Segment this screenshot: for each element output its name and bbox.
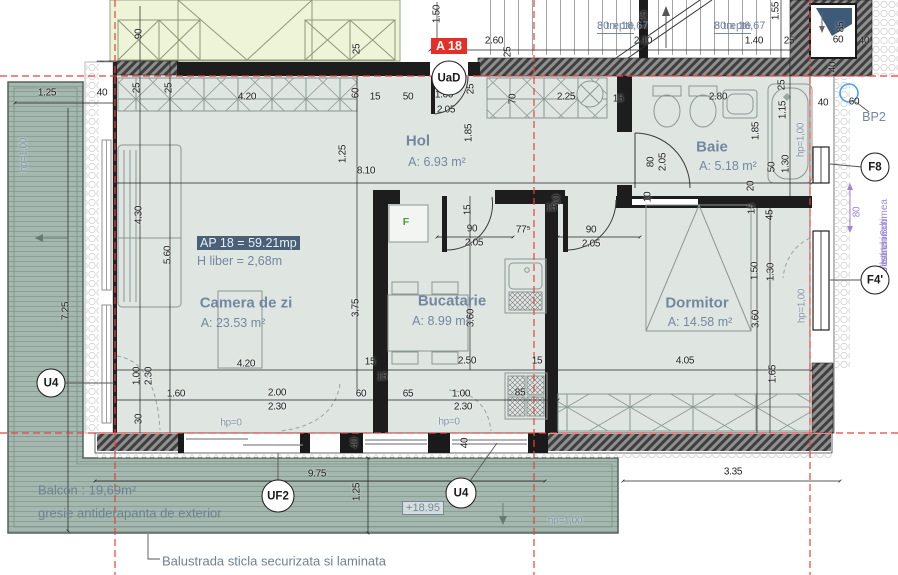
dimension-label: 8.10 [357, 166, 375, 177]
apartment-badge: A 18 [431, 38, 467, 54]
marker-uad: UaD [432, 61, 467, 96]
dimension-label: 15 [370, 92, 381, 103]
dimension-label: 2.50 [458, 356, 476, 367]
stairs-dimensions: 30 x 16,67 [597, 20, 648, 33]
marker-u4: U4 [37, 369, 66, 398]
dimension-label: 20 [746, 181, 757, 192]
dimension-label: 2.30 [454, 402, 472, 413]
room-area: A: 8.99 m² [412, 314, 470, 328]
dimension-label: 80 [852, 207, 863, 218]
dimension-label: 2.30 [268, 402, 286, 413]
stairs-dimensions: 30 x 16,67 [714, 20, 765, 33]
dimension-label: hp=1,00 [796, 123, 807, 157]
dimension-label: 60 [351, 88, 362, 99]
dimension-label: 90 [586, 225, 597, 236]
balcony-area-label: Balcon : 19,69m² [38, 483, 136, 498]
dimension-label: hp=1,00 [19, 138, 30, 172]
dimension-label: hp=1,00 [797, 289, 808, 323]
dimension-label: 40 [859, 36, 870, 47]
dimension-label: 10 [643, 192, 654, 203]
dimension-label: 25 [784, 36, 795, 47]
dimension-label: 1.65 [768, 365, 779, 383]
room-name: Hol [406, 133, 430, 150]
dimension-label: 65 [403, 389, 414, 400]
dimension-label: 3.60 [751, 310, 762, 328]
dimension-label: 50 [767, 162, 778, 173]
dimension-label: 1.25 [338, 145, 349, 163]
dimension-label: 25 [466, 84, 477, 95]
dimension-label: 15 [377, 372, 388, 383]
dimension-label: 1.25 [38, 88, 56, 99]
marker-u4: U4 [446, 478, 477, 509]
dimension-label: 5.60 [163, 246, 174, 264]
dimension-label: 60 [849, 97, 860, 108]
dimension-label: 1.85 [464, 124, 475, 142]
dimension-label: hp=0 [438, 417, 459, 428]
marker-uf2: UF2 [262, 480, 295, 513]
dimension-label: 4.20 [238, 92, 256, 103]
dimension-label: 1.50 [750, 262, 761, 280]
room-name: Dormitor [665, 295, 728, 312]
dimension-label: 90 [467, 224, 478, 235]
dimension-label: 15 [532, 356, 543, 367]
dimension-label: 1.40 [745, 36, 763, 47]
dimension-label: 1.25 [352, 483, 363, 501]
dimension-label: 3.35 [724, 467, 742, 478]
dimension-label: 25 [164, 83, 175, 94]
dimension-label: 2.25 [557, 92, 575, 103]
dimension-label: 15 [546, 203, 557, 214]
dimension-label: 1.30 [766, 263, 777, 281]
dimension-label: 85 [515, 388, 526, 399]
dimension-label: 40 [460, 438, 471, 449]
dimension-label: 15 [463, 205, 474, 216]
dimension-label: 2.60 [485, 36, 503, 47]
dimension-label: 40 [97, 88, 108, 99]
dimension-label: 25 [503, 47, 514, 58]
dimension-label: 30 [134, 414, 145, 425]
dimension-label: 40 [818, 98, 829, 109]
dimension-label: 9.75 [308, 469, 326, 480]
dimension-label: 1.85 [751, 122, 762, 140]
dimension-label: 2.80 [709, 92, 727, 103]
dimension-label: 60 [356, 389, 367, 400]
room-area: A: 14.58 m² [668, 315, 733, 329]
dimension-label: 25 [352, 44, 363, 55]
dimension-label: 25 [777, 80, 788, 91]
dimension-label: 77⁵ [516, 225, 530, 236]
bp2-label: BP2 [862, 110, 886, 124]
room-area: A: 23.53 m² [201, 316, 266, 330]
dimension-label: 1.60 [167, 389, 185, 400]
dimension-label: 4.20 [237, 359, 255, 370]
room-name: Bucatarie [418, 293, 486, 310]
room-area: A: 6.93 m² [408, 155, 466, 169]
dimension-label: hp=1,00 [548, 516, 582, 527]
dimension-label: 80 [646, 157, 657, 168]
dimension-label: 1.50 [432, 5, 443, 23]
dimension-label: 2.05 [658, 153, 669, 171]
dimension-label: 15 [747, 204, 758, 215]
dimension-label: 2.05 [465, 238, 483, 249]
dimension-label: 2.05 [437, 105, 455, 116]
railing-note: Balustrada sticla securizata si laminata [162, 554, 386, 569]
dimension-label: 1.55 [771, 2, 782, 20]
dimension-label: 40 [828, 62, 839, 73]
dimension-label: 25 [132, 83, 143, 94]
fridge-label: F [403, 216, 409, 228]
dimension-label: 1.30 [781, 155, 792, 173]
dimension-label: 3.75 [351, 299, 362, 317]
dimension-label: 85 [836, 22, 847, 33]
dimension-label: 1.00 [132, 367, 143, 385]
dimension-label: 60 [833, 35, 844, 46]
dimension-label: 2.05 [582, 239, 600, 250]
marker-f8: F8 [861, 153, 890, 182]
dimension-label: 90 [134, 29, 145, 40]
labels-layer: A 18 AP 18 = 59.21mp H liber = 2,68m BP2… [0, 0, 898, 575]
dimension-label: 70 [508, 94, 519, 105]
dimension-label: 4.05 [676, 356, 694, 367]
dimension-label: 1.15 [778, 101, 789, 119]
marker-f4': F4' [861, 266, 890, 295]
dimension-label: 15 [613, 94, 624, 105]
dimension-label: 2.10 [634, 36, 652, 47]
ceiling-height-label: H liber = 2,68m [197, 254, 282, 268]
room-name: Baie [696, 139, 728, 156]
room-area: A: 5.18 m² [699, 159, 757, 173]
dimension-label: 45 [765, 210, 776, 221]
dimension-label: 1.00 [452, 389, 470, 400]
dimension-label: 4.30 [134, 206, 145, 224]
dimension-label: 7.25 [61, 302, 72, 320]
dimension-label: hp=0 [220, 418, 241, 429]
dimension-label: 2.30 [144, 367, 155, 385]
floor-plan-canvas: A 18 AP 18 = 59.21mp H liber = 2,68m BP2… [0, 0, 898, 575]
room-name: Camera de zi [200, 295, 293, 312]
dimension-label: 40 [350, 438, 361, 449]
dimension-label: 2.00 [268, 388, 286, 399]
apartment-area-label: AP 18 = 59.21mp [197, 236, 300, 250]
dimension-label: 50 [403, 92, 414, 103]
balcony-floor-note: gresie antiderapanta de exterior [38, 506, 222, 521]
level-marker: +18.95 [402, 501, 444, 515]
dimension-label: 15 [365, 357, 376, 368]
